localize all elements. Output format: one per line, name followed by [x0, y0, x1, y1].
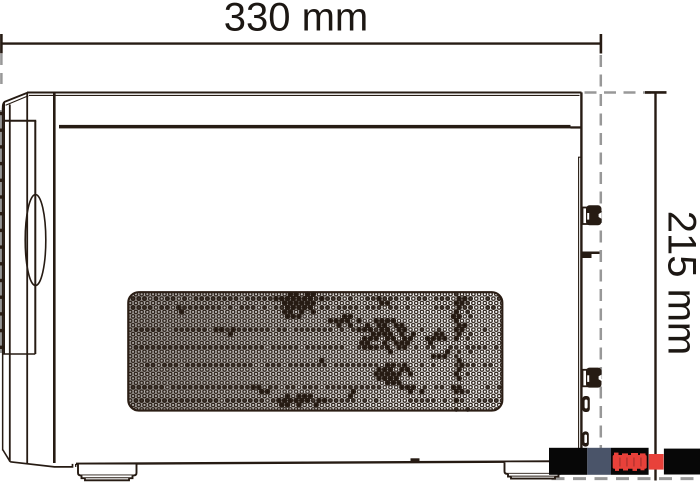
svg-text:330 mm: 330 mm	[224, 0, 369, 40]
svg-text:215 mm: 215 mm	[660, 211, 700, 356]
